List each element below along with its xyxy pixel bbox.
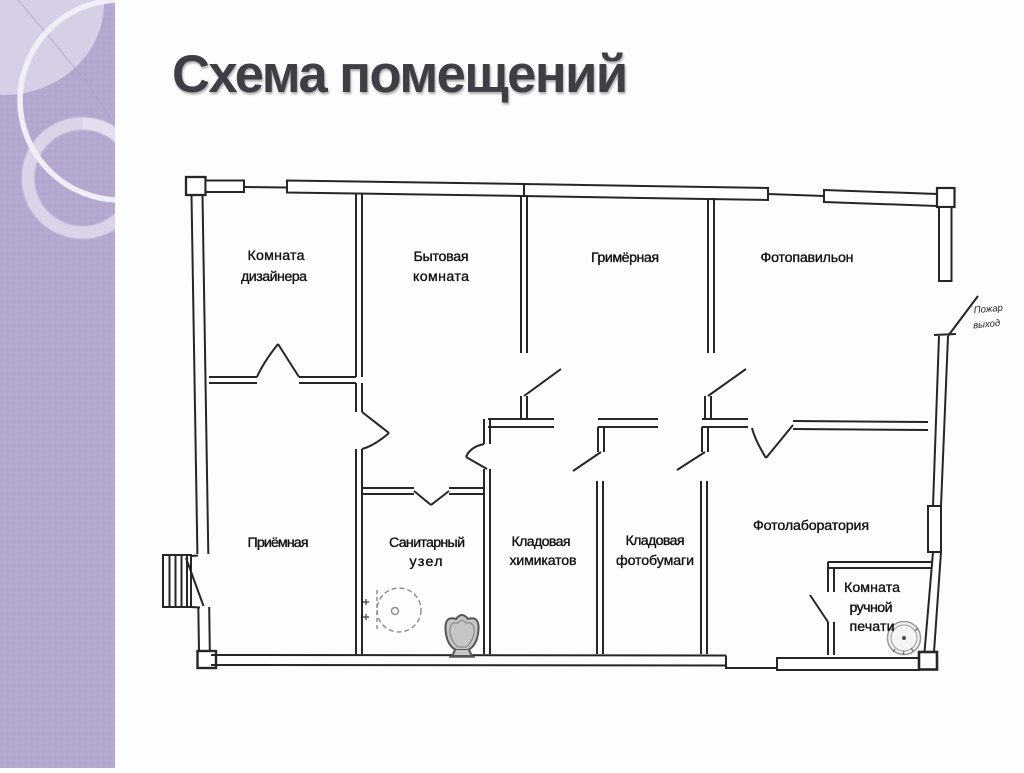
svg-text:Пожар: Пожар bbox=[973, 303, 1003, 316]
svg-text:дизайнера: дизайнера bbox=[241, 269, 307, 285]
svg-text:химикатов: химикатов bbox=[510, 553, 577, 569]
svg-text:узел: узел bbox=[410, 554, 443, 570]
svg-text:Фотолаборатория: Фотолаборатория bbox=[753, 518, 869, 534]
svg-text:Санитарный: Санитарный bbox=[389, 535, 465, 551]
svg-text:Комната: Комната bbox=[844, 580, 900, 596]
svg-text:фотобумаги: фотобумаги bbox=[616, 553, 694, 569]
svg-text:Приёмная: Приёмная bbox=[248, 535, 309, 551]
svg-text:Комната: Комната bbox=[248, 248, 305, 264]
svg-text:Кладовая: Кладовая bbox=[512, 534, 571, 550]
svg-text:выход: выход bbox=[973, 318, 1001, 331]
svg-text:ручной: ручной bbox=[850, 600, 893, 616]
svg-text:комната: комната bbox=[413, 269, 469, 285]
svg-text:Гримёрная: Гримёрная bbox=[591, 250, 659, 266]
svg-text:Бытовая: Бытовая bbox=[414, 249, 469, 265]
svg-text:Фотопавильон: Фотопавильон bbox=[761, 250, 854, 266]
svg-text:Кладовая: Кладовая bbox=[626, 533, 685, 549]
svg-text:печати: печати bbox=[850, 619, 895, 635]
